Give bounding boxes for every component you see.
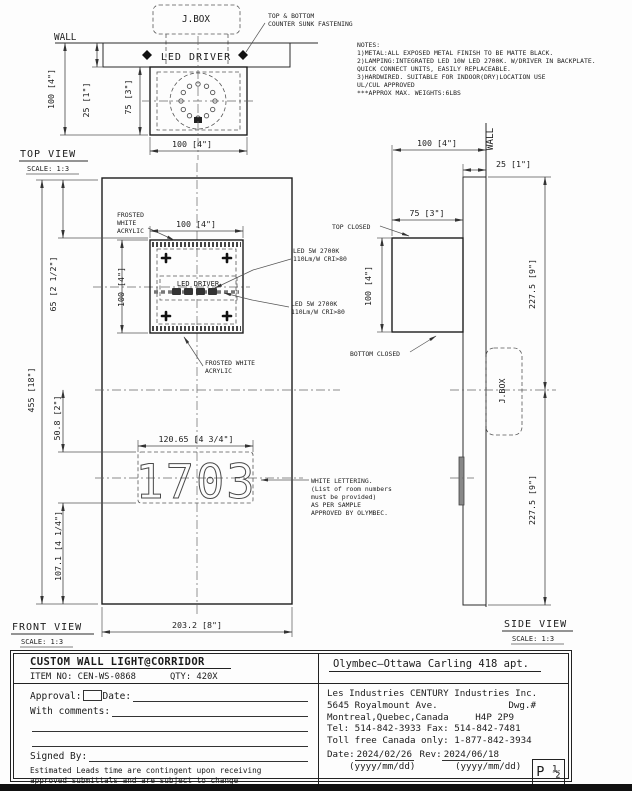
frosted-acrylic-label: WHITE bbox=[117, 219, 136, 227]
title-block-product-section: CUSTOM WALL LIGHT@CORRIDOR ITEM NO: CEN-… bbox=[14, 654, 319, 684]
rev-format: (yyyy/mm/dd) bbox=[455, 761, 521, 772]
view-title: SIDE VIEW bbox=[504, 619, 567, 630]
dim-label: 75 [3"] bbox=[410, 208, 445, 218]
view-title: TOP VIEW bbox=[20, 149, 76, 160]
approval-form: Approval: Date: With comments: Signed By… bbox=[14, 684, 319, 787]
product-title: CUSTOM WALL LIGHT@CORRIDOR bbox=[30, 656, 231, 669]
quantity: QTY: 420X bbox=[170, 672, 218, 682]
countersunk-fastener-icon bbox=[142, 50, 152, 60]
front-view-dimensions: 100 [4"] 100 [4"] 455 [18"] 65 [2 1/2"] … bbox=[26, 180, 292, 637]
leader-line bbox=[215, 259, 291, 288]
lettering-note: (List of room numbers bbox=[311, 485, 392, 493]
view-scale: SCALE: 1:3 bbox=[27, 165, 69, 173]
lettering-note: must be provided) bbox=[311, 493, 376, 501]
comments-field-line[interactable] bbox=[112, 706, 308, 717]
company-name: Les Industries CENTURY Industries Inc. bbox=[327, 688, 562, 700]
leader-line bbox=[148, 228, 174, 240]
drawing-sheet: J.BOX WALL LED DRIVER TOP & BOTTOM COUNT… bbox=[0, 0, 632, 791]
signed-by-label: Signed By: bbox=[30, 751, 87, 762]
technical-drawing: J.BOX WALL LED DRIVER TOP & BOTTOM COUNT… bbox=[0, 0, 632, 650]
date-value: 2024/02/26 bbox=[355, 749, 414, 761]
leader-line bbox=[246, 23, 265, 52]
notes-block: NOTES: 1)METAL:ALL EXPOSED METAL FINISH … bbox=[357, 41, 596, 97]
fastening-note: COUNTER SUNK FASTENING bbox=[268, 20, 353, 28]
note-line: 1)METAL:ALL EXPOSED METAL FINISH TO BE M… bbox=[357, 49, 553, 57]
note-line: ***APPROX MAX. WEIGHTS:6LBS bbox=[357, 89, 461, 97]
view-scale: SCALE: 1:3 bbox=[21, 638, 63, 646]
dim-label: 75 [3"] bbox=[123, 80, 133, 115]
top-closed-label: TOP CLOSED bbox=[332, 223, 371, 231]
top-view: J.BOX WALL LED DRIVER TOP & BOTTOM COUNT… bbox=[19, 5, 353, 174]
dim-label: 100 [4"] bbox=[46, 69, 56, 109]
frosted-acrylic-label: FROSTED WHITE bbox=[205, 359, 255, 367]
note-line: QUICK CONNECT UNITS, EASILY REPLACEABLE. bbox=[357, 65, 511, 73]
wall-label: WALL bbox=[54, 32, 77, 43]
title-block-project-section: Olymbec—Ottawa Carling 418 apt. bbox=[319, 654, 568, 684]
comments-field-line[interactable] bbox=[32, 736, 308, 747]
view-scale: SCALE: 1:3 bbox=[512, 635, 554, 643]
company-info: Les Industries CENTURY Industries Inc. 5… bbox=[319, 684, 568, 787]
led-spec-label: LED 5W 2700K bbox=[293, 247, 339, 255]
rev-value: 2024/06/18 bbox=[442, 749, 501, 761]
leader-line bbox=[380, 226, 409, 236]
fastening-note: TOP & BOTTOM bbox=[268, 12, 314, 20]
lettering-note: AS PER SAMPLE bbox=[311, 501, 361, 509]
dim-label: 120.65 [4 3/4"] bbox=[159, 434, 234, 444]
dim-label: 100 [4"] bbox=[363, 266, 373, 306]
led-modules bbox=[172, 288, 217, 295]
postal-code: H4P 2P9 bbox=[475, 712, 514, 724]
led-spec-label: 110Lm/W CRI>80 bbox=[291, 308, 345, 316]
comments-field-line[interactable] bbox=[32, 721, 308, 732]
dim-label: 227.5 [9"] bbox=[527, 475, 537, 525]
sheet-bottom-border bbox=[0, 784, 632, 791]
date-label: Date: bbox=[102, 691, 131, 702]
dim-label: 203.2 [8"] bbox=[172, 620, 222, 630]
led-spec-label: LED 5W 2700K bbox=[291, 300, 337, 308]
approval-label: Approval: bbox=[30, 691, 81, 702]
notes-heading: NOTES: bbox=[357, 41, 380, 49]
tollfree-line: Toll free Canada only: 1-877-842-3934 bbox=[327, 735, 562, 747]
approval-checkbox[interactable] bbox=[83, 690, 102, 701]
company-address-2: Montreal,Quebec,Canada bbox=[327, 712, 449, 724]
title-block: CUSTOM WALL LIGHT@CORRIDOR ITEM NO: CEN-… bbox=[10, 650, 572, 782]
dim-label: 455 [18"] bbox=[26, 368, 36, 413]
note-line: 3)HARDWIRED. SUITABLE FOR INDOOR(DRY)LOC… bbox=[357, 73, 546, 81]
frosted-acrylic-label: FROSTED bbox=[117, 211, 144, 219]
led-spec-label: 110Lm/W CRI>80 bbox=[293, 255, 347, 263]
frosted-acrylic-label: ACRYLIC bbox=[205, 367, 232, 375]
side-view: WALL J.BOX TOP CLOSED BOTTOM CLOSED 100 … bbox=[332, 123, 573, 644]
wall-label: WALL bbox=[485, 127, 496, 150]
led-driver-label: LED DRIVER bbox=[177, 280, 220, 288]
note-line: UL/CUL APPROVED bbox=[357, 81, 415, 89]
item-number: ITEM NO: CEN-WS-0868 bbox=[30, 672, 136, 682]
number-plate-edge bbox=[459, 457, 464, 505]
backplate-side bbox=[463, 177, 486, 605]
date-field-label: Date: bbox=[327, 749, 355, 760]
drawing-number-label: Dwg.# bbox=[508, 700, 536, 712]
date-field-line[interactable] bbox=[133, 691, 308, 702]
disclaimer-line: Estimated Leads time are contingent upon… bbox=[30, 766, 308, 776]
dim-label: 25 [1"] bbox=[496, 159, 531, 169]
dim-label: 100 [4"] bbox=[176, 219, 216, 229]
jbox-label: J.BOX bbox=[182, 14, 210, 25]
dim-label: 100 [4"] bbox=[116, 267, 126, 307]
front-view: LED DRIVER FROSTED WHITE ACRYLIC FROSTED… bbox=[11, 163, 392, 647]
leader-line bbox=[184, 337, 203, 366]
view-title: FRONT VIEW bbox=[12, 622, 82, 633]
bottom-closed-label: BOTTOM CLOSED bbox=[350, 350, 400, 358]
room-number: 1703 bbox=[135, 455, 256, 510]
dim-label: 50.8 [2"] bbox=[52, 396, 62, 441]
rev-label: Rev: bbox=[420, 749, 442, 760]
company-address-1: 5645 Royalmount Ave. bbox=[327, 700, 438, 712]
comments-label: With comments: bbox=[30, 706, 110, 717]
dim-label: 100 [4"] bbox=[172, 139, 212, 149]
dim-label: 107.1 [4 1/4"] bbox=[53, 511, 63, 581]
note-line: 2)LAMPING:INTEGRATED LED 10W LED 2700K. … bbox=[357, 57, 596, 65]
jbox-label: J.BOX bbox=[497, 379, 507, 404]
lamp-side bbox=[392, 238, 463, 332]
signature-field-line[interactable] bbox=[89, 751, 308, 762]
dim-label: 25 [1"] bbox=[81, 83, 91, 118]
project-title: Olymbec—Ottawa Carling 418 apt. bbox=[329, 658, 541, 672]
leader-line bbox=[410, 336, 436, 352]
frosted-acrylic-label: ACRYLIC bbox=[117, 227, 144, 235]
dim-label: 227.5 [9"] bbox=[527, 259, 537, 309]
side-view-dimensions: 100 [4"] 25 [1"] 75 [3"] 100 [4"] 227.5 … bbox=[363, 138, 551, 605]
lettering-note: WHITE LETTERING. bbox=[311, 477, 373, 485]
led-driver-label: LED DRIVER bbox=[161, 52, 231, 63]
phone-line: Tel: 514-842-3933 Fax: 514-842-7481 bbox=[327, 723, 562, 735]
dim-label: 65 [2 1/2"] bbox=[48, 257, 58, 312]
dim-label: 100 [4"] bbox=[417, 138, 457, 148]
page-number-badge: P ½ bbox=[532, 759, 565, 785]
date-format: (yyyy/mm/dd) bbox=[349, 761, 415, 772]
lettering-note: APPROVED BY OLYMBEC. bbox=[311, 509, 388, 517]
